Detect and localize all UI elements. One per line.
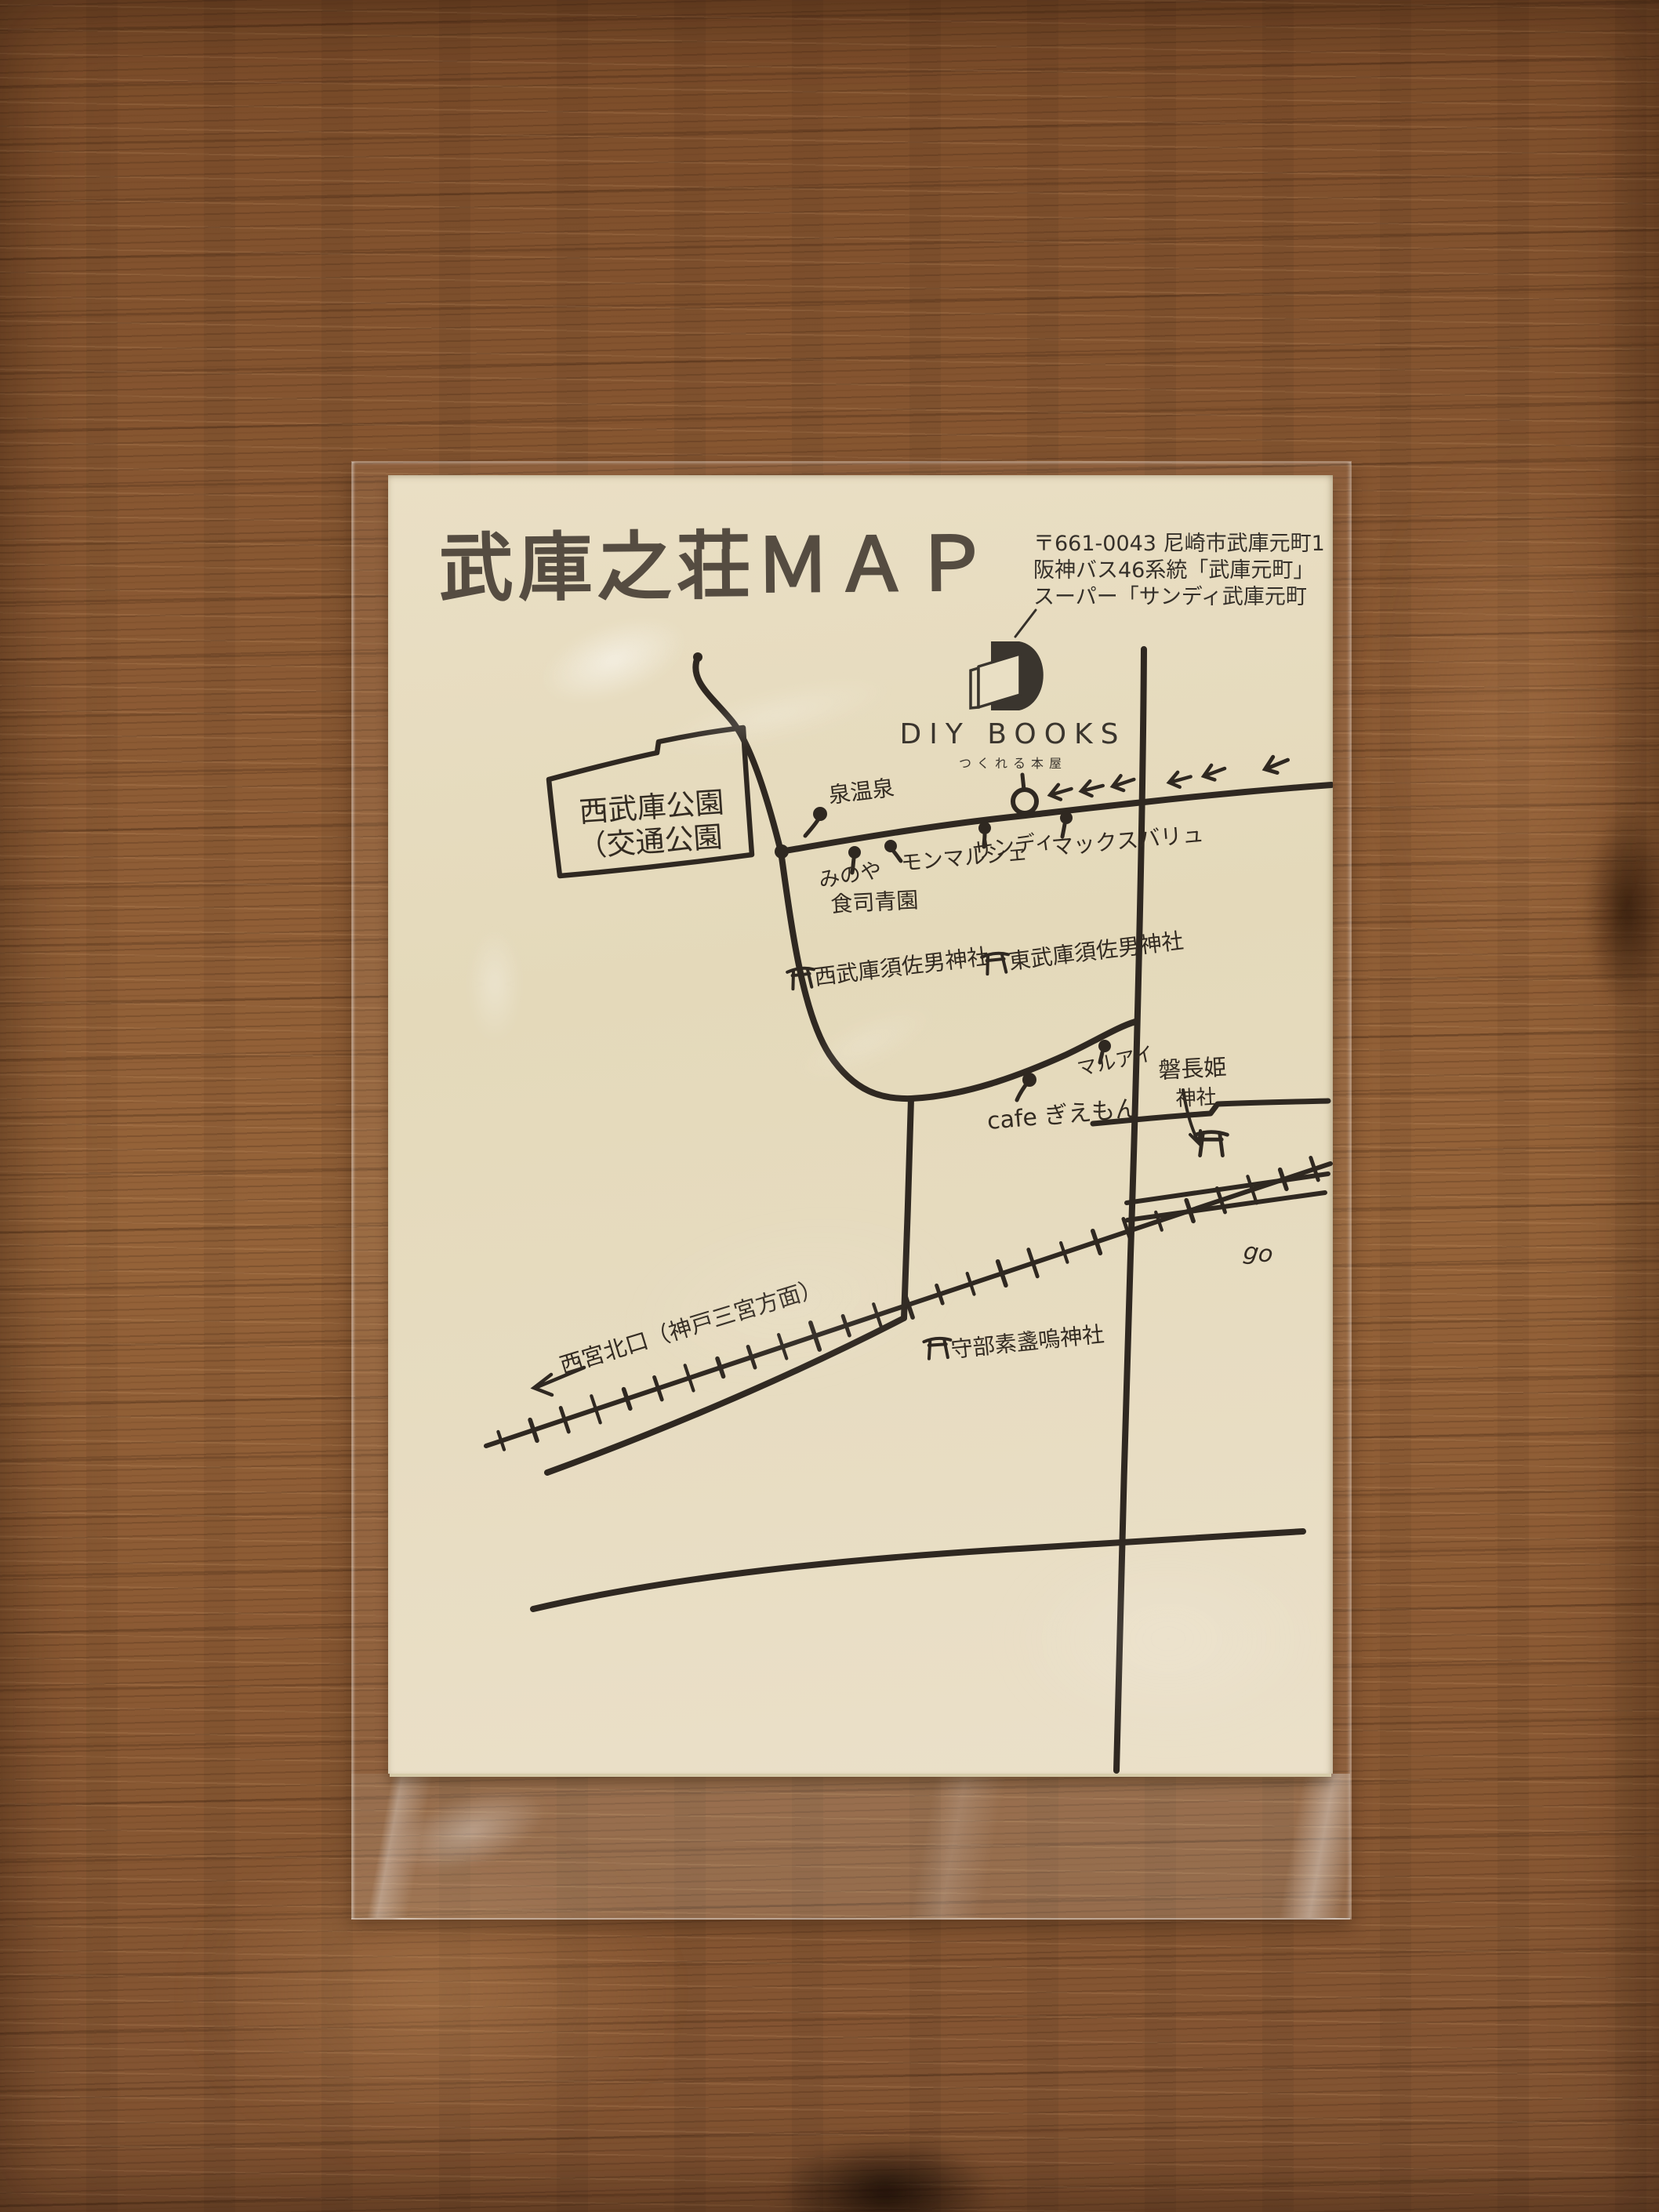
railway-tick bbox=[717, 1359, 724, 1377]
left-arrow-icon bbox=[1202, 763, 1226, 782]
label-station-direction: 西宮北口（神戸三宮方面） bbox=[557, 1273, 826, 1378]
railway-tick bbox=[1280, 1170, 1287, 1190]
pin-monmarche bbox=[884, 840, 901, 861]
shop-marker-circle-icon bbox=[1013, 790, 1036, 813]
address-leader-line bbox=[1015, 610, 1036, 637]
torii-icon bbox=[924, 1338, 952, 1359]
map-drawing: 武庫之荘ＭＡＰ 〒661-0043 尼崎市武庫元町1 阪神バス46系統「武庫元町… bbox=[0, 0, 1659, 2212]
label-moribe-shrine: 守部素盞嗚神社 bbox=[949, 1321, 1105, 1363]
address-line-2: 阪神バス46系統「武庫元町」 bbox=[1033, 558, 1314, 583]
left-arrow-icon bbox=[1112, 774, 1135, 792]
pin-onsen bbox=[805, 807, 827, 836]
photo-of-handdrawn-map: 武庫之荘ＭＡＰ 〒661-0043 尼崎市武庫元町1 阪神バス46系統「武庫元町… bbox=[0, 0, 1659, 2212]
road-bottom-curve bbox=[533, 1531, 1303, 1609]
label-maruai: マルアイ bbox=[1075, 1042, 1156, 1081]
map-title: 武庫之荘ＭＡＰ bbox=[438, 521, 993, 612]
left-arrow-icon bbox=[1263, 754, 1290, 775]
road-middle-vertical bbox=[904, 1099, 911, 1318]
shop-marker-stem bbox=[1022, 775, 1024, 790]
label-minoya-line1: みのや bbox=[817, 858, 884, 893]
address-block: 〒661-0043 尼崎市武庫元町1 阪神バス46系統「武庫元町」 スーパー「サ… bbox=[1033, 532, 1325, 609]
label-iwanagahime-line2: 神社 bbox=[1175, 1085, 1218, 1111]
logo-wordmark: DIY BOOKS bbox=[900, 718, 1127, 750]
road-main-north-south bbox=[1116, 649, 1144, 1771]
address-line-3: スーパー「サンディ武庫元町 bbox=[1033, 585, 1307, 609]
diy-books-map-marker bbox=[1013, 775, 1036, 813]
dark-object-bottom-edge bbox=[776, 2138, 996, 2212]
left-arrow-icon bbox=[1168, 772, 1192, 788]
address-line-1: 〒661-0043 尼崎市武庫元町1 bbox=[1033, 532, 1325, 556]
railway-tick bbox=[624, 1389, 630, 1409]
label-minoya-line2: 食司青園 bbox=[830, 887, 920, 917]
label-iwanagahime-line1: 磐長姫 bbox=[1158, 1053, 1228, 1084]
label-shrine-higashi: 東武庫須佐男神社 bbox=[1007, 928, 1185, 975]
left-arrow-icon bbox=[1080, 780, 1103, 797]
label-edge-partial: go bbox=[1242, 1237, 1275, 1269]
label-cafe: cafe ぎえもん bbox=[986, 1095, 1140, 1135]
logo-tagline: つくれる本屋 bbox=[959, 756, 1067, 771]
torii-icons bbox=[787, 952, 1228, 1359]
label-maxvalu: マックスバリュ bbox=[1051, 821, 1205, 860]
label-shrine-nishi: 西武庫須佐男神社 bbox=[813, 943, 990, 990]
left-arrow-icon bbox=[1049, 783, 1073, 801]
diy-books-logo bbox=[971, 641, 1044, 710]
label-onsen: 泉温泉 bbox=[827, 775, 895, 808]
